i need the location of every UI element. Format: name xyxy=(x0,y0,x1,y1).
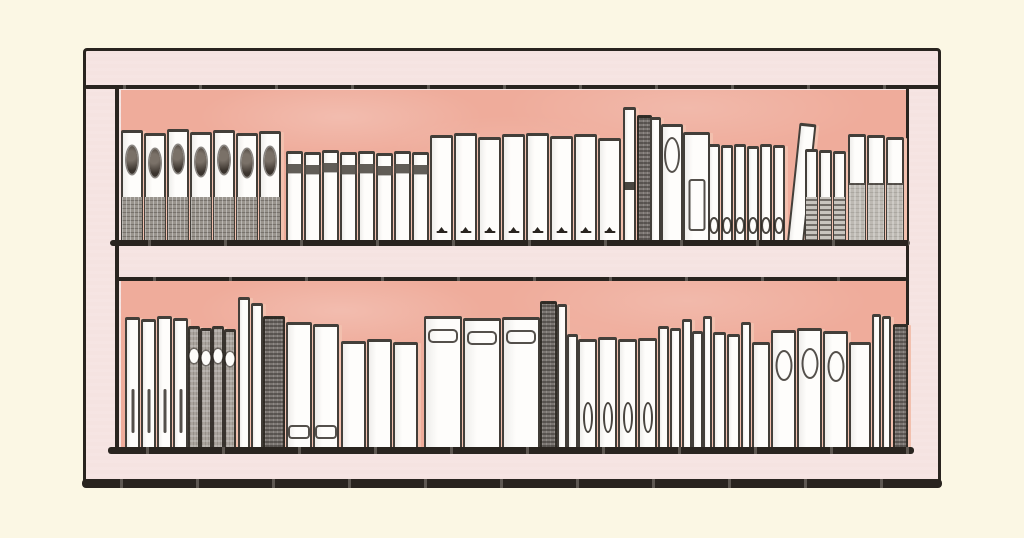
left-stile-line xyxy=(115,85,119,451)
book-plain xyxy=(658,326,669,449)
book-oval-b xyxy=(638,338,657,449)
book-oval-s xyxy=(721,145,733,242)
book-band xyxy=(322,150,339,242)
spine-mark xyxy=(315,425,337,439)
spine-mark xyxy=(242,149,253,177)
book-plain xyxy=(367,339,392,449)
book-tab-top xyxy=(424,316,462,449)
spine-mark xyxy=(265,147,276,175)
book-glyph xyxy=(430,135,453,242)
bottom-base-line xyxy=(82,479,942,488)
upper-shelf-board xyxy=(110,240,910,246)
book-plain xyxy=(682,319,692,449)
spine-mark xyxy=(150,149,161,177)
book-tab-top xyxy=(463,318,501,449)
spine-mark xyxy=(190,349,199,363)
spine-mark xyxy=(664,137,680,173)
book-hatch-bottom xyxy=(805,149,818,242)
book-plain xyxy=(557,304,567,449)
book-hatch-bottom xyxy=(819,150,832,242)
book-dark xyxy=(893,324,908,449)
spine-mark xyxy=(827,351,844,382)
book-plain xyxy=(703,316,712,449)
spine-mark xyxy=(603,402,613,433)
book-tick xyxy=(125,317,140,449)
spine-mark xyxy=(179,389,182,433)
book-plain xyxy=(713,332,726,449)
book-tab-bottom xyxy=(313,324,339,449)
book-tick xyxy=(173,318,188,449)
book-band xyxy=(304,152,321,242)
spine-mark xyxy=(532,226,543,233)
book-medallion xyxy=(144,133,166,242)
book-plain xyxy=(727,334,740,449)
book-glyph xyxy=(526,133,549,242)
book-oval-s xyxy=(708,144,720,242)
book-gray-bottom xyxy=(886,137,904,242)
book-gray-bottom xyxy=(848,134,866,242)
book-glyph xyxy=(478,137,501,242)
spine-mark xyxy=(460,226,471,233)
book-gray-oval xyxy=(188,326,200,449)
book-glyph xyxy=(574,134,597,242)
book-plain xyxy=(393,342,418,449)
spine-mark xyxy=(623,402,633,433)
book-tab-top xyxy=(502,317,540,449)
spine-mark xyxy=(506,330,536,344)
shelf-frame xyxy=(83,48,941,487)
spine-mark xyxy=(508,226,519,233)
book-oval-s xyxy=(747,146,759,242)
book-oval-b xyxy=(598,337,617,449)
spine-mark xyxy=(722,217,732,234)
book-band xyxy=(340,152,357,242)
book-oval-mid xyxy=(661,124,683,242)
book-white-tick xyxy=(623,107,636,242)
book-medallion xyxy=(167,129,189,242)
spine-mark xyxy=(761,217,771,234)
book-plain xyxy=(238,297,250,449)
book-medallion xyxy=(121,130,143,242)
book-medallion xyxy=(190,132,212,242)
book-band xyxy=(394,151,411,242)
spine-mark xyxy=(467,331,497,345)
book-glyph xyxy=(550,136,573,242)
book-gray-oval xyxy=(224,329,236,449)
spine-mark xyxy=(214,349,223,363)
book-glyph xyxy=(454,133,477,242)
spine-mark xyxy=(163,389,166,433)
book-plain xyxy=(741,322,751,449)
book-band xyxy=(286,151,303,242)
spine-mark xyxy=(173,145,184,173)
book-medallion xyxy=(236,133,258,242)
book-oval-b xyxy=(618,339,637,449)
spine-mark xyxy=(643,402,653,433)
spine-mark xyxy=(735,217,745,234)
book-gray-oval xyxy=(212,326,224,449)
book-plain xyxy=(567,334,578,449)
book-dark xyxy=(540,301,557,449)
book-plain xyxy=(849,342,871,449)
bookshelf-illustration: Hand-drawn illustration of a pale pink w… xyxy=(0,0,1024,538)
spine-mark xyxy=(202,351,211,365)
spine-mark xyxy=(288,425,310,439)
book-band xyxy=(358,151,375,242)
spine-mark xyxy=(196,148,207,176)
book-gray-oval xyxy=(200,328,212,449)
book-glyph xyxy=(598,138,621,242)
book-band xyxy=(376,153,393,242)
spine-mark xyxy=(147,389,150,433)
bottom-shelf-books xyxy=(121,281,908,447)
book-tick xyxy=(141,319,156,449)
spine-mark xyxy=(709,217,719,234)
book-plain xyxy=(650,117,661,242)
spine-mark xyxy=(583,402,593,433)
book-plain xyxy=(251,303,263,449)
spine-mark xyxy=(556,226,567,233)
spine-mark xyxy=(484,226,495,233)
spine-mark xyxy=(436,226,447,233)
book-band xyxy=(412,152,429,242)
top-shelf-books xyxy=(121,90,908,240)
book-oval-s xyxy=(773,145,785,242)
book-plain xyxy=(872,314,881,449)
book-plain xyxy=(752,342,770,449)
spine-mark xyxy=(775,350,792,381)
spine-mark xyxy=(801,348,818,379)
spine-mark xyxy=(219,146,230,174)
book-oval-b xyxy=(578,339,597,449)
book-tick xyxy=(157,316,172,449)
book-hatch-bottom xyxy=(833,151,846,242)
book-oval-top xyxy=(771,330,796,449)
lower-shelf-board xyxy=(108,447,914,454)
top-rail-line xyxy=(85,85,939,89)
book-oval-s xyxy=(734,144,746,242)
book-plain xyxy=(341,341,366,449)
book-oval-top xyxy=(797,328,822,449)
spine-mark xyxy=(131,389,134,433)
spine-mark xyxy=(688,179,705,231)
book-oval-s xyxy=(760,144,772,242)
book-plain xyxy=(692,331,703,449)
book-tab-bottom xyxy=(286,322,312,449)
spine-mark xyxy=(624,182,635,190)
book-dark xyxy=(263,316,285,449)
spine-mark xyxy=(127,146,138,174)
spine-mark xyxy=(604,226,615,233)
book-glyph xyxy=(502,134,525,242)
spine-mark xyxy=(580,226,591,233)
spine-mark xyxy=(226,352,235,366)
book-rect-label xyxy=(683,132,710,242)
book-plain xyxy=(882,316,891,449)
spine-mark xyxy=(774,217,784,234)
book-oval-top xyxy=(823,331,848,449)
book-gray-bottom xyxy=(867,135,885,242)
spine-mark xyxy=(428,329,458,343)
book-plain xyxy=(670,328,681,449)
spine-mark xyxy=(748,217,758,234)
book-medallion xyxy=(259,131,281,242)
book-medallion xyxy=(213,130,235,242)
